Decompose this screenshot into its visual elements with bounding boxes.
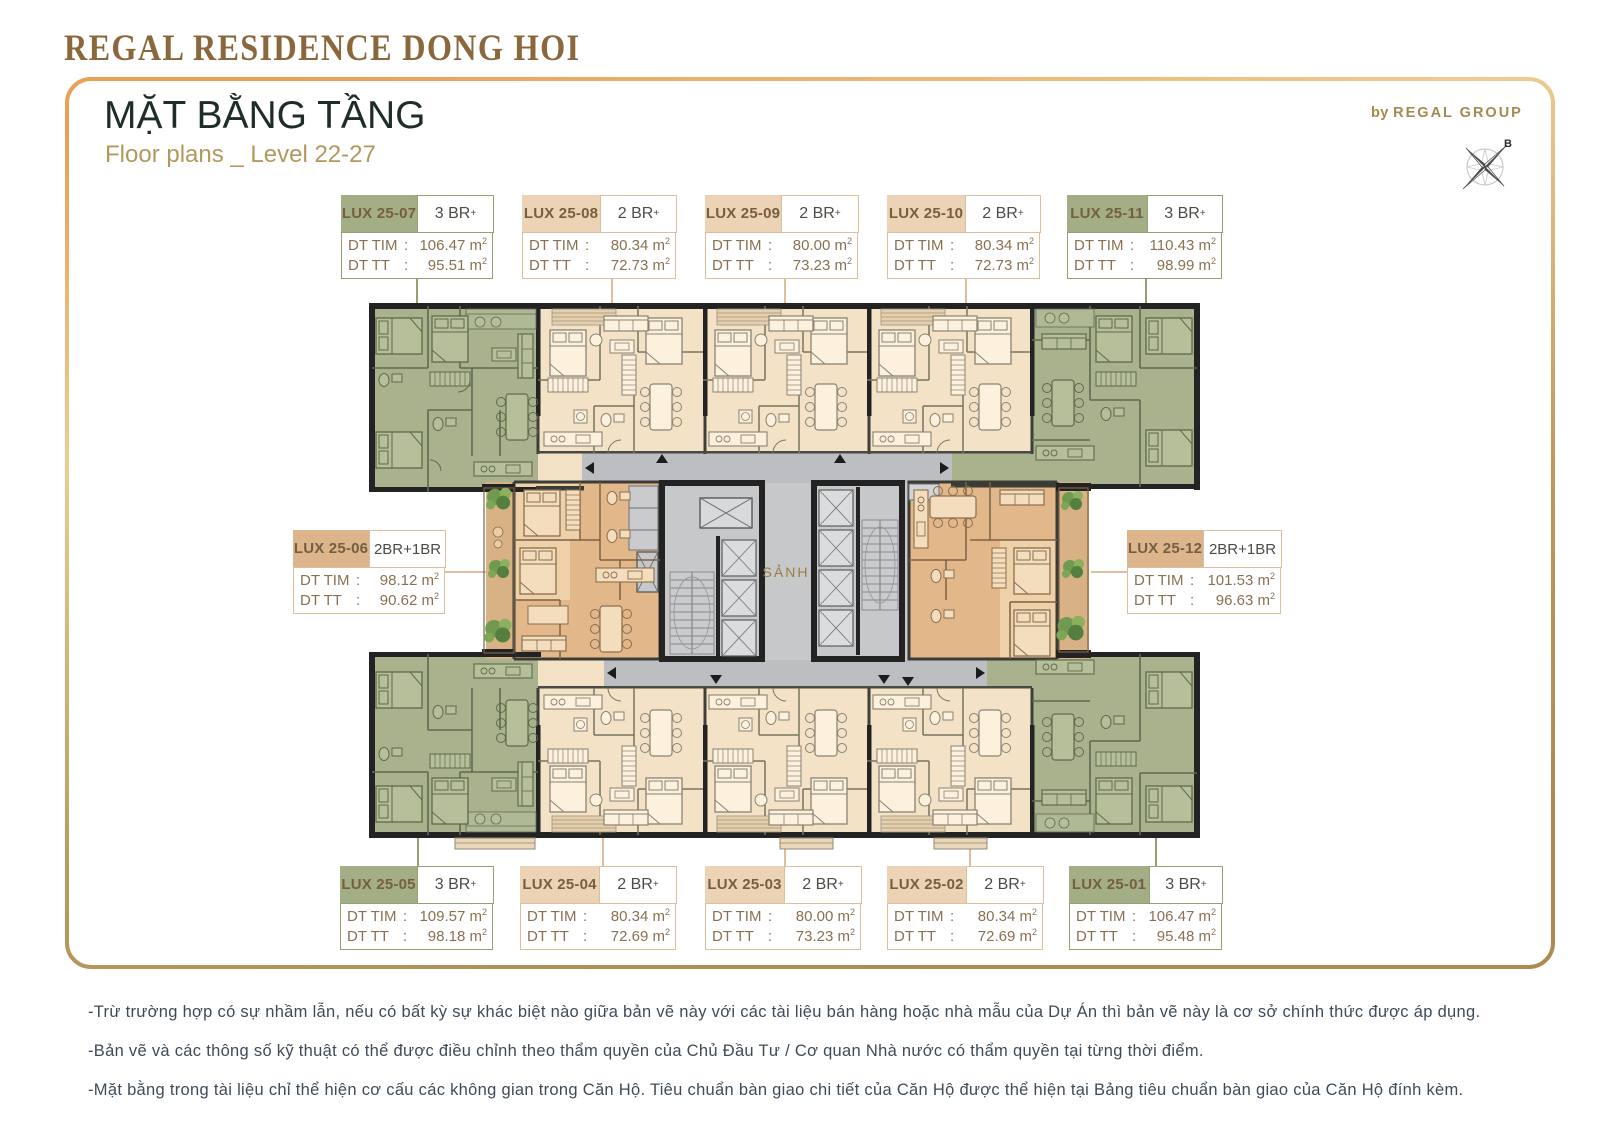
svg-text:SẢNH: SẢNH [763, 564, 810, 580]
